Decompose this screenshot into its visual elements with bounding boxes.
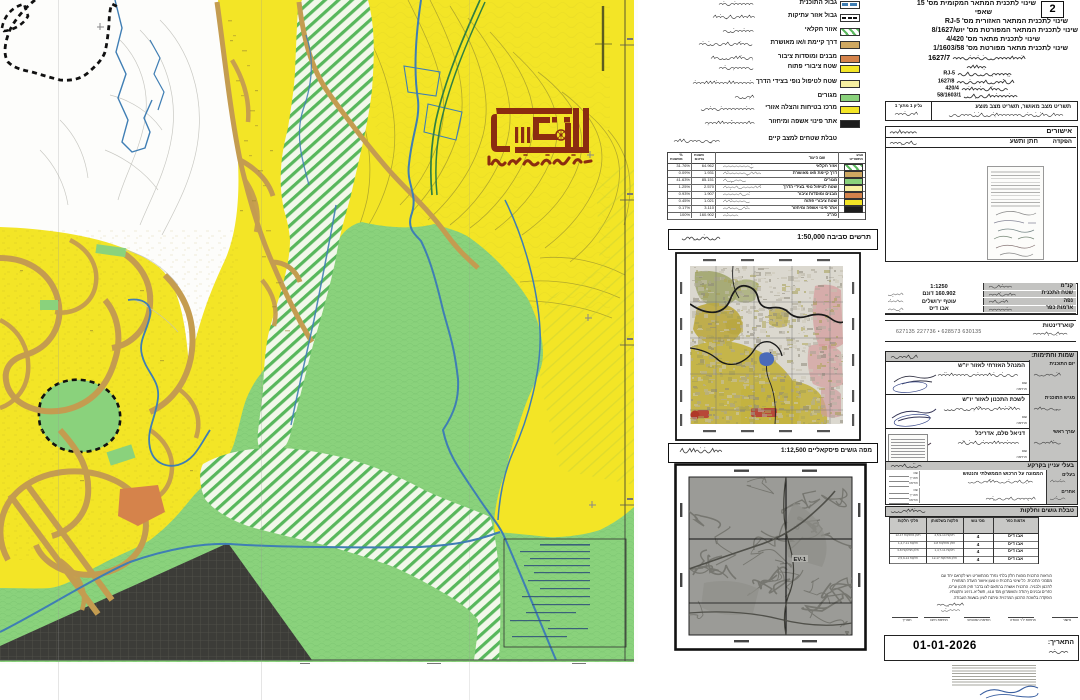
- svg-text:EV-1: EV-1: [794, 557, 807, 563]
